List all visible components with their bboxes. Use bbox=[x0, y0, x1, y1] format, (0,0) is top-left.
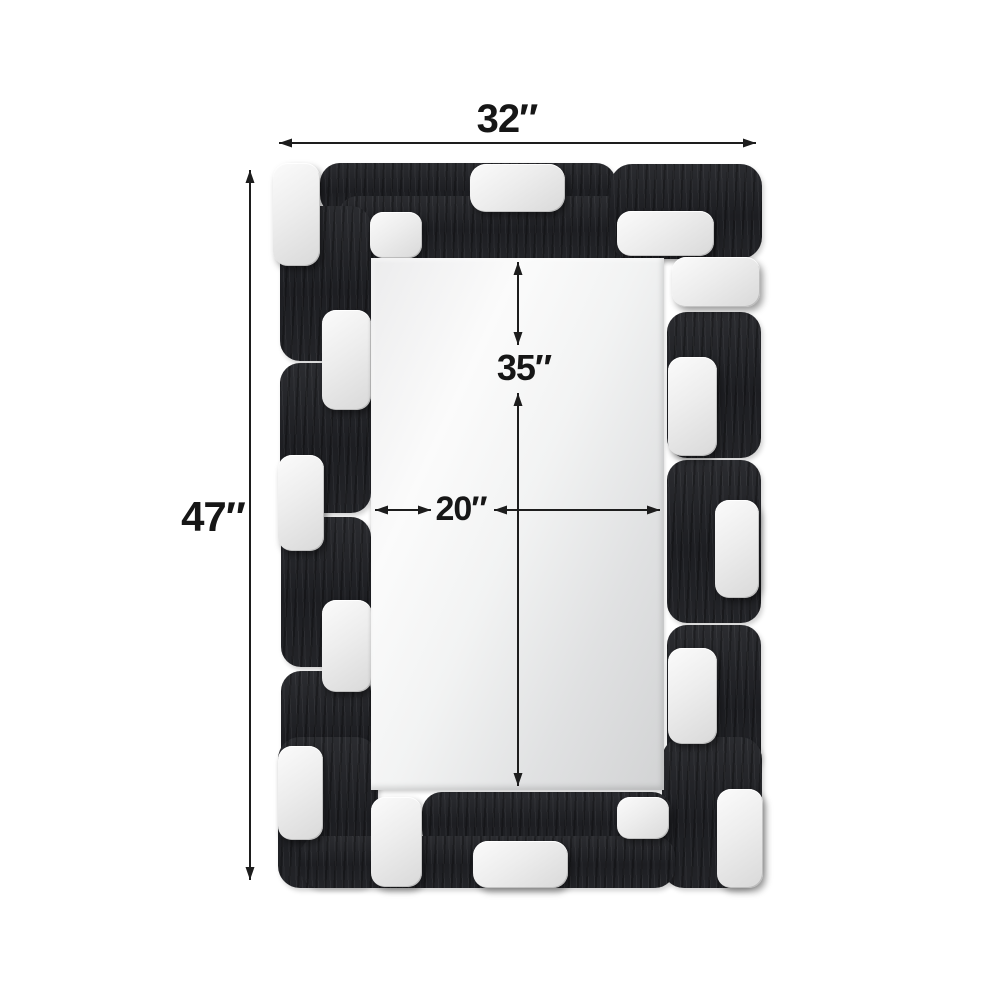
frame-silver-block bbox=[668, 648, 717, 744]
frame-silver-block bbox=[278, 746, 323, 840]
frame-silver-block bbox=[473, 841, 568, 888]
mirror-glass bbox=[371, 258, 664, 790]
frame-silver-block bbox=[717, 789, 763, 888]
frame-silver-block bbox=[371, 797, 422, 887]
frame-silver-block bbox=[278, 455, 324, 551]
overall-height-label: 47″ bbox=[181, 496, 245, 538]
mirror-width-label: 20″ bbox=[435, 492, 486, 526]
frame-silver-block bbox=[470, 164, 565, 212]
frame-silver-block bbox=[322, 310, 371, 410]
frame-silver-block bbox=[668, 357, 717, 456]
mirror-dimension-diagram: 32″ 47″ 35″ 20″ bbox=[0, 0, 1000, 1000]
frame-silver-block bbox=[617, 797, 669, 839]
frame-silver-block bbox=[617, 211, 714, 256]
frame-silver-block bbox=[672, 257, 760, 307]
frame-silver-block bbox=[370, 212, 422, 258]
frame-silver-block bbox=[322, 600, 372, 692]
mirror-height-label: 35″ bbox=[497, 350, 551, 386]
frame-silver-block bbox=[715, 500, 759, 598]
frame-silver-block bbox=[273, 163, 320, 266]
overall-width-label: 32″ bbox=[477, 99, 538, 139]
